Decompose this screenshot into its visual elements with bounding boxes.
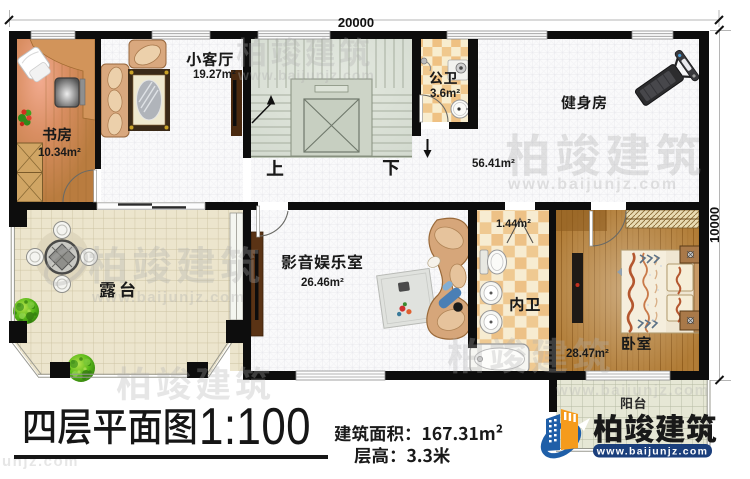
svg-text:28.47m²: 28.47m²	[566, 348, 609, 360]
svg-text:26.46m²: 26.46m²	[301, 277, 344, 289]
svg-text:www.baijunjz.com: www.baijunjz.com	[91, 289, 245, 306]
svg-text:1:100: 1:100	[199, 398, 311, 456]
svg-text:19.27m²: 19.27m²	[193, 69, 236, 81]
svg-text:1.44m²: 1.44m²	[496, 218, 531, 230]
svg-text:www.baijunjz.com: www.baijunjz.com	[237, 67, 375, 83]
svg-text:3.6m²: 3.6m²	[430, 88, 460, 100]
svg-text:20000: 20000	[338, 15, 374, 30]
svg-text:www.baijunjz.com: www.baijunjz.com	[555, 382, 709, 399]
svg-text:www.baijunjz.com: www.baijunjz.com	[596, 446, 708, 458]
svg-text:10.34m²: 10.34m²	[38, 147, 81, 159]
svg-text:56.41m²: 56.41m²	[472, 158, 515, 170]
svg-text:10000: 10000	[707, 207, 722, 243]
svg-text:www.baijunjz.com: www.baijunjz.com	[507, 176, 678, 193]
